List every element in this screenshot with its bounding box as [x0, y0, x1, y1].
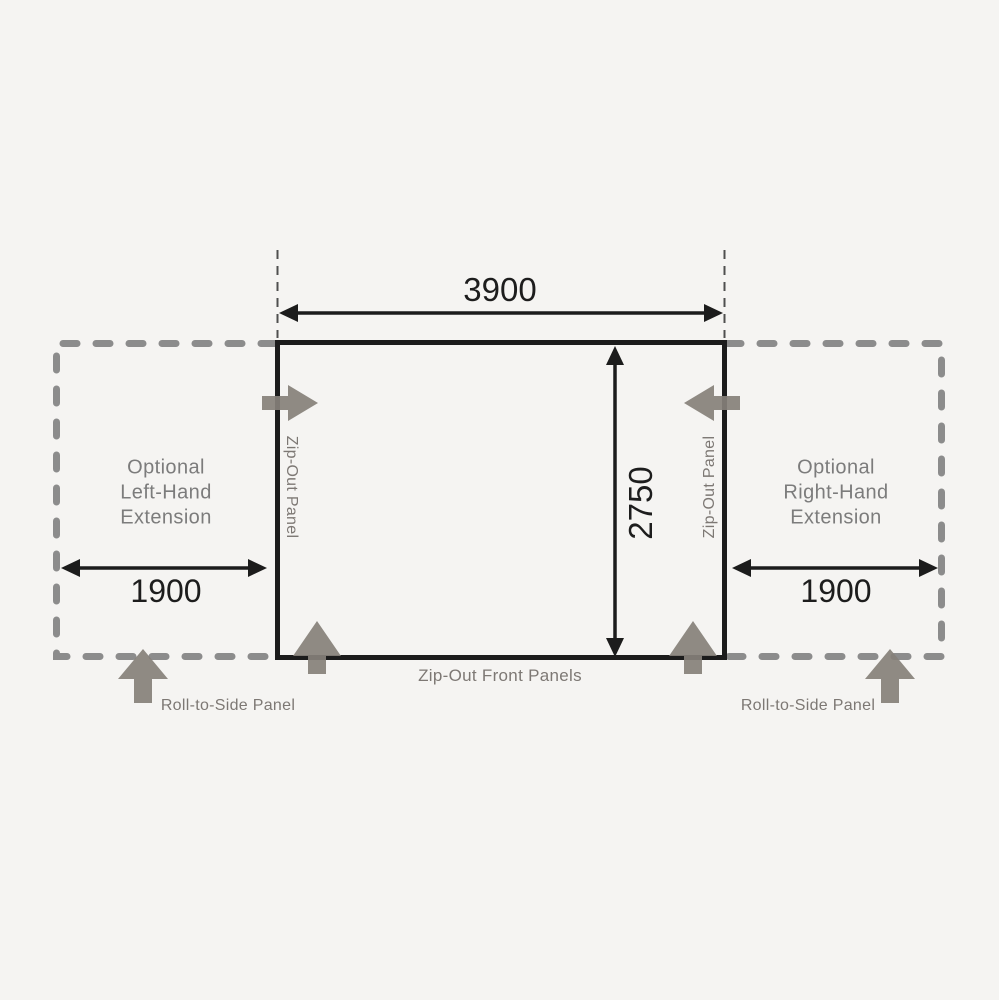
right-zip-panel-label: Zip-Out Panel: [701, 436, 719, 539]
width-dimension-label: 3900: [463, 271, 536, 309]
left-extension-label: Optional Left-Hand Extension: [120, 456, 211, 531]
front-left-zip-arrow-icon: [293, 621, 341, 674]
right-roll-to-side-label: Roll-to-Side Panel: [741, 697, 875, 715]
right-extension-dimension-label: 1900: [800, 573, 871, 610]
front-right-zip-arrow-icon: [669, 621, 717, 674]
awning-floorplan-diagram: 3900 2750 1900 1900 Optional Left-Hand E…: [0, 0, 999, 1000]
left-roll-to-side-label: Roll-to-Side Panel: [161, 697, 295, 715]
right-zip-panel-arrow-icon: [684, 385, 740, 421]
right-extension-label: Optional Right-Hand Extension: [783, 456, 888, 531]
left-zip-panel-arrow-icon: [262, 385, 318, 421]
left-extension-dimension-label: 1900: [130, 573, 201, 610]
front-panels-label: Zip-Out Front Panels: [418, 666, 582, 686]
depth-dimension-label: 2750: [622, 466, 660, 539]
left-zip-panel-label: Zip-Out Panel: [282, 436, 300, 539]
